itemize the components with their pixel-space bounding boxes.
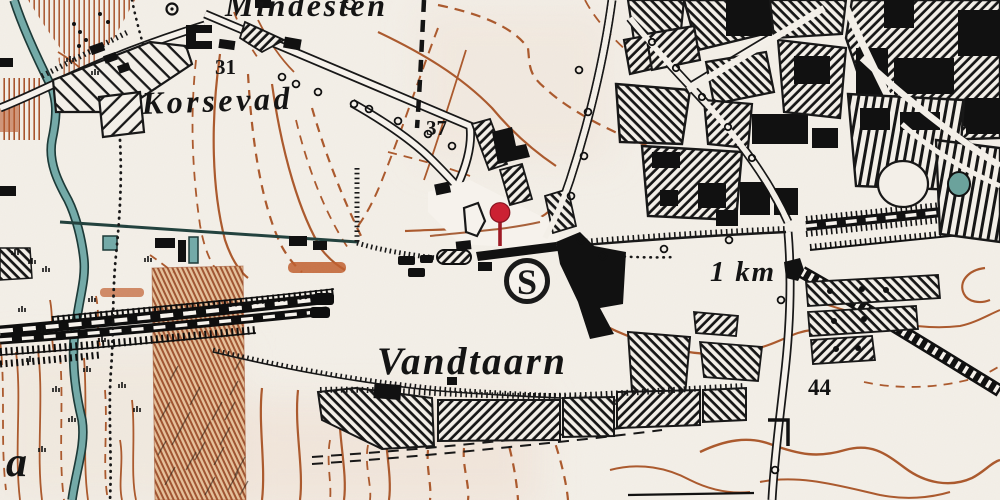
svg-text:a: a — [6, 440, 27, 486]
svg-text:1 km: 1 km — [710, 256, 774, 288]
svg-text:Vandtaarn: Vandtaarn — [377, 340, 565, 383]
svg-text:31: 31 — [215, 55, 236, 79]
svg-text:44: 44 — [808, 375, 832, 400]
svg-text:37: 37 — [426, 116, 447, 140]
svg-text:S: S — [517, 262, 537, 302]
